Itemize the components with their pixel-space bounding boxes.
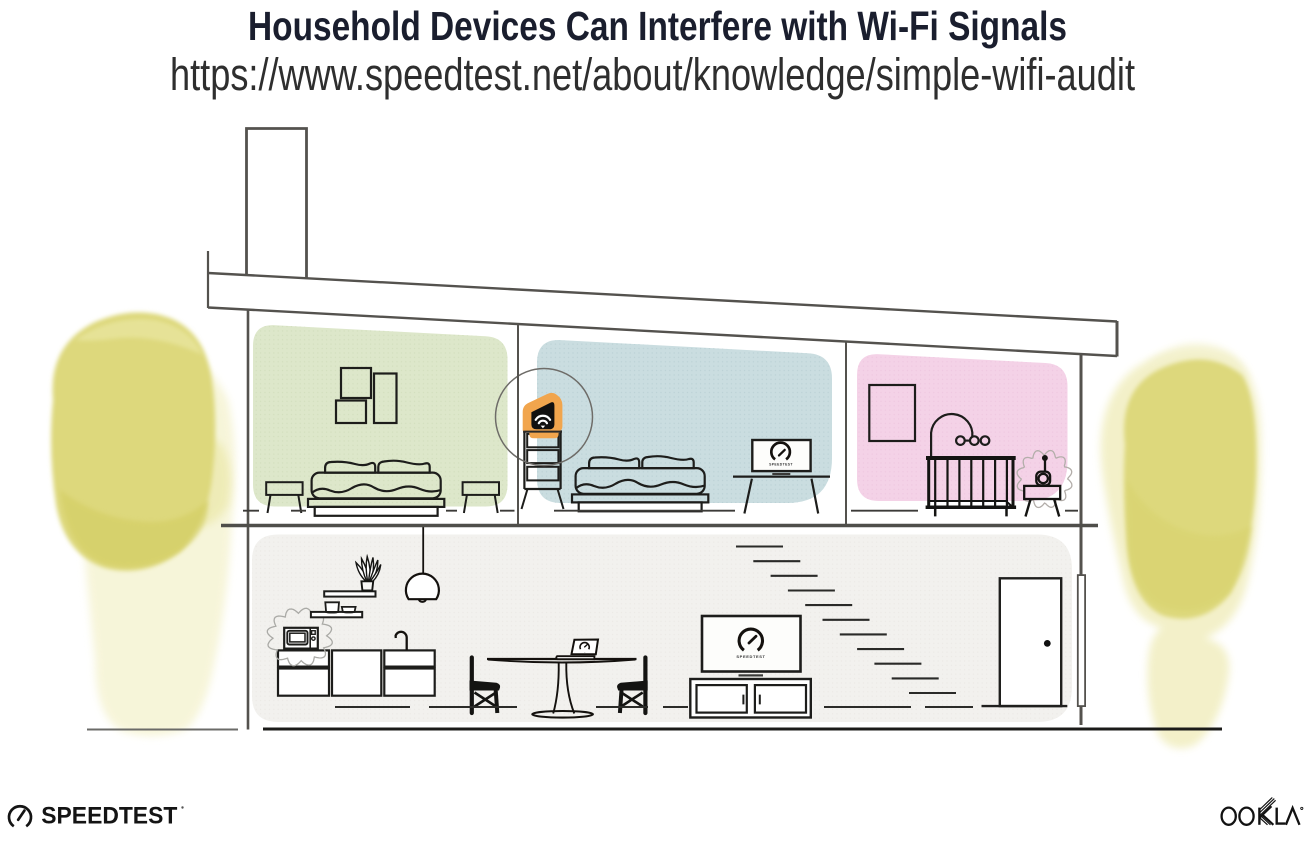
svg-text:Household Devices Can Interfer: Household Devices Can Interfere with Wi-…	[248, 3, 1067, 49]
svg-text:SPEEDTEST: SPEEDTEST	[769, 463, 793, 467]
svg-text:SPEEDTEST: SPEEDTEST	[41, 803, 177, 830]
svg-text:https://www.speedtest.net/abou: https://www.speedtest.net/about/knowledg…	[170, 49, 1135, 100]
svg-text:SPEEDTEST: SPEEDTEST	[736, 654, 765, 659]
